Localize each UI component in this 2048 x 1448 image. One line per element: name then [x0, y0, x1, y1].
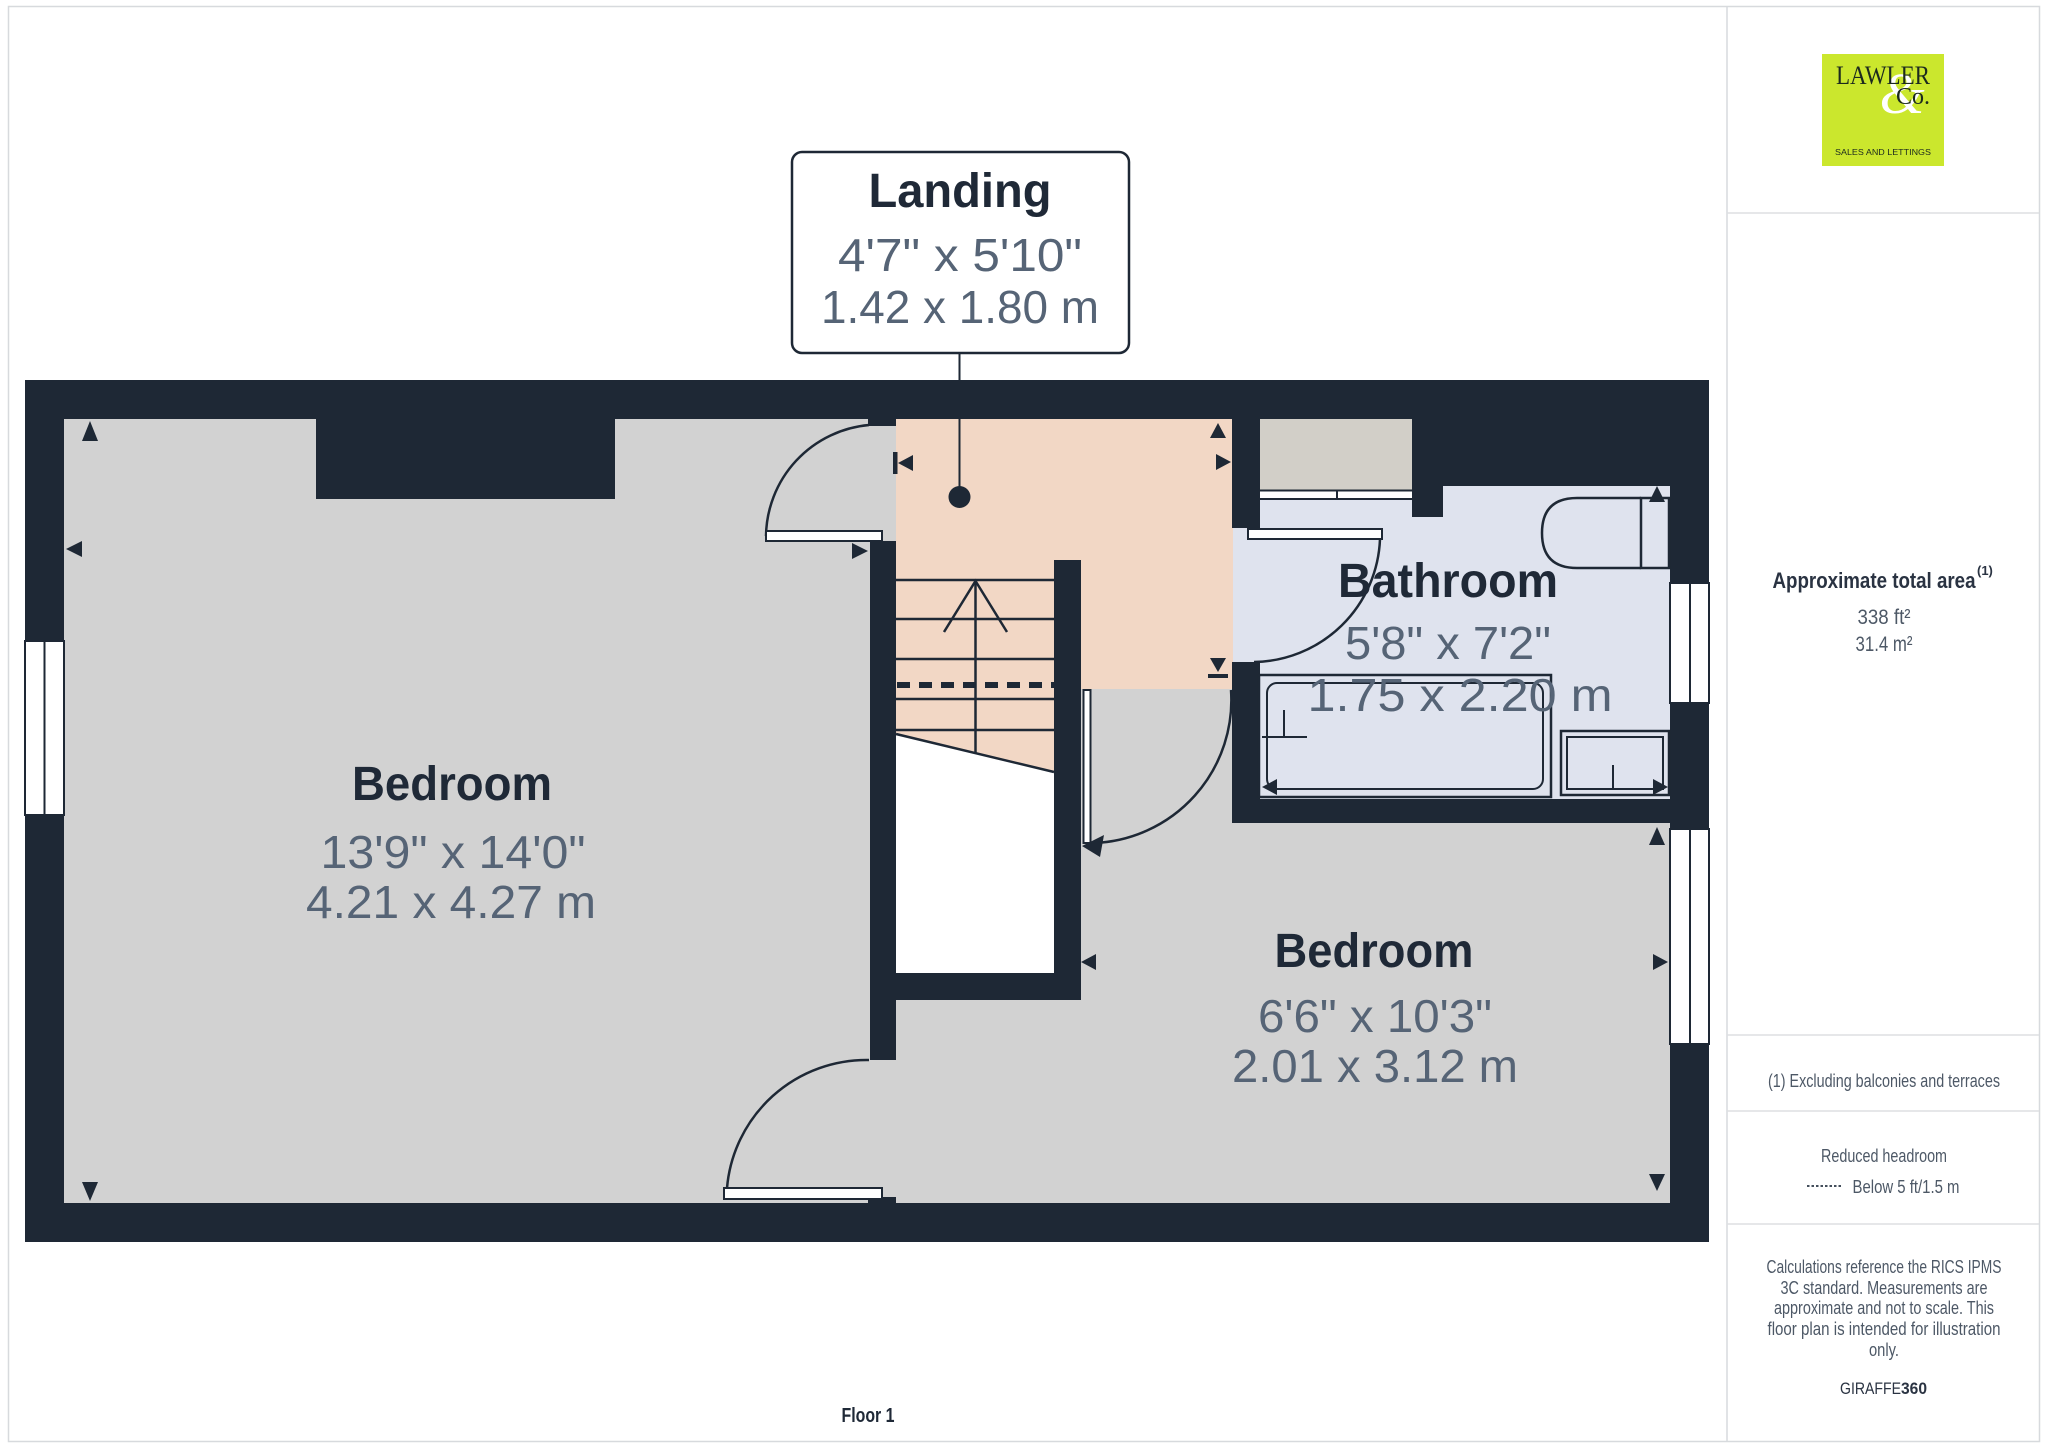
svg-text:Floor 1: Floor 1	[842, 1405, 895, 1427]
svg-text:31.4 m²: 31.4 m²	[1856, 633, 1913, 656]
svg-text:6'6" x 10'3": 6'6" x 10'3"	[1258, 990, 1492, 1042]
svg-text:3C standard. Measurements are: 3C standard. Measurements are	[1781, 1277, 1988, 1298]
svg-text:Reduced headroom: Reduced headroom	[1821, 1145, 1947, 1166]
svg-text:Bedroom: Bedroom	[352, 758, 552, 811]
svg-text:1.75 x 2.20 m: 1.75 x 2.20 m	[1308, 669, 1613, 721]
svg-text:Approximate total area: Approximate total area	[1773, 568, 1977, 593]
svg-text:360: 360	[1901, 1379, 1927, 1398]
svg-text:13'9" x 14'0": 13'9" x 14'0"	[321, 826, 586, 878]
svg-text:2.01 x 3.12 m: 2.01 x 3.12 m	[1232, 1040, 1518, 1092]
svg-text:SALES AND LETTINGS: SALES AND LETTINGS	[1835, 148, 1931, 157]
svg-text:Co.: Co.	[1896, 84, 1930, 110]
svg-text:338 ft²: 338 ft²	[1858, 606, 1911, 629]
svg-text:Bathroom: Bathroom	[1338, 555, 1558, 608]
svg-text:only.: only.	[1869, 1339, 1899, 1360]
svg-text:1.42 x 1.80 m: 1.42 x 1.80 m	[821, 281, 1099, 333]
svg-text:Calculations reference the RIC: Calculations reference the RICS IPMS	[1767, 1256, 2002, 1277]
svg-text:Below 5 ft/1.5 m: Below 5 ft/1.5 m	[1853, 1176, 1960, 1197]
svg-text:GIRAFFE: GIRAFFE	[1840, 1379, 1901, 1398]
svg-text:5'8" x 7'2": 5'8" x 7'2"	[1345, 617, 1551, 669]
svg-text:Bedroom: Bedroom	[1275, 925, 1474, 978]
svg-text:(1) Excluding balconies and te: (1) Excluding balconies and terraces	[1768, 1070, 2000, 1091]
svg-text:4'7" x 5'10": 4'7" x 5'10"	[838, 229, 1082, 281]
svg-text:(1): (1)	[1977, 563, 1993, 578]
svg-text:4.21 x 4.27 m: 4.21 x 4.27 m	[306, 876, 596, 928]
svg-text:approximate and not to scale.: approximate and not to scale. This	[1774, 1297, 1994, 1318]
svg-text:floor plan is intended for ill: floor plan is intended for illustration	[1768, 1318, 2001, 1339]
svg-text:Landing: Landing	[869, 165, 1052, 218]
